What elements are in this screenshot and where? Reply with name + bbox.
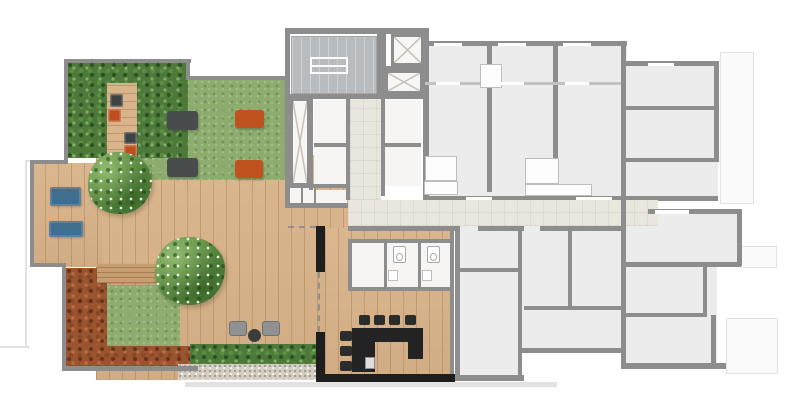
hedge-strip-bottom [190, 344, 320, 364]
bar-stool [359, 315, 370, 325]
unit-floor-south-b [522, 226, 624, 352]
terrace-shadow-line [185, 382, 557, 387]
elevator-shaft-1 [391, 34, 424, 66]
core-room-7 [316, 190, 347, 204]
wall-corridor-north [423, 196, 660, 200]
wall-core-a [309, 98, 313, 190]
opening-dashed-v [318, 272, 320, 332]
core-room-5 [289, 188, 301, 203]
window [434, 43, 462, 46]
bath-pod [525, 158, 559, 184]
wall-se-p2 [703, 267, 707, 317]
core-room-4 [385, 147, 421, 186]
window [466, 197, 492, 200]
wall-ua-bottom [452, 375, 524, 381]
gravel-strip [178, 364, 318, 380]
wall-corridor-south-1 [348, 226, 458, 231]
wall-gourmet-east [450, 231, 454, 381]
walkway-cushion-dark [124, 132, 137, 144]
wall-black-upper [316, 226, 325, 272]
wall-core-e [285, 203, 348, 208]
wall-hedge-left [64, 59, 68, 161]
core-room-6 [303, 188, 314, 203]
wall-lawn-top [188, 76, 287, 80]
sun-lounger-blue [49, 221, 83, 237]
wall-ub-partition [524, 306, 624, 310]
kitchen-counter [424, 181, 458, 195]
wall-se-east-top [737, 209, 742, 266]
walkway-cushion-orange [108, 109, 121, 122]
armchair [262, 321, 280, 336]
toilet [427, 246, 440, 263]
wall-ub-v [568, 230, 572, 310]
wall-wc-bottom [350, 287, 454, 291]
wall-se-p3 [711, 315, 716, 368]
window [563, 43, 591, 46]
side-table [248, 329, 261, 342]
unit-floor-northeast [627, 61, 718, 200]
wall-ua-partition [455, 268, 520, 272]
wall-core-g [314, 188, 316, 204]
wall-black-bottom [316, 374, 455, 382]
bar-counter-right [408, 342, 423, 359]
lounge-mat-orange [235, 160, 263, 178]
corridor-main [348, 200, 658, 226]
bath-pod [425, 156, 457, 181]
wall-rw-v3 [621, 41, 626, 211]
stair-landing [310, 57, 348, 74]
garden-bench [97, 264, 163, 283]
wall-wc-d1 [384, 243, 387, 287]
opening-dashed-h [288, 226, 316, 228]
walkway-cushion-dark [110, 94, 123, 107]
bar-stool [340, 331, 352, 341]
window [436, 82, 460, 85]
sink [388, 270, 398, 281]
floor-plan [0, 0, 795, 413]
bar-stool [340, 361, 352, 371]
wall-shrub-left [62, 265, 66, 368]
wall-core-c [385, 143, 421, 147]
bar-counter-top [352, 328, 423, 342]
core-room-1 [314, 100, 347, 143]
core-room-2 [314, 147, 347, 186]
window [498, 43, 526, 46]
wall-core-b [314, 143, 347, 147]
wall-arm-left [30, 160, 34, 267]
window [576, 197, 612, 200]
wardrobe [480, 64, 502, 88]
tree [88, 152, 152, 214]
bar-appliance [365, 357, 375, 369]
wall-se-p4 [626, 313, 706, 317]
bar-stool [340, 346, 352, 356]
corridor-core [350, 98, 381, 200]
window [648, 63, 674, 66]
sink [422, 270, 432, 281]
service-room [352, 243, 384, 287]
projection-line-bottom-left [0, 346, 30, 348]
sun-lounger-blue [50, 187, 81, 206]
elevator-shaft-2 [385, 70, 423, 94]
wall-corridor-south-3 [540, 226, 626, 231]
wall-core-top [285, 28, 429, 34]
projection-line-left [25, 162, 27, 346]
shrub-border-bottom [66, 346, 197, 366]
kitchen-counter [525, 184, 592, 196]
wall-ne-p2 [626, 158, 719, 162]
wall-hedge-top [64, 59, 191, 63]
balcony-ghost-top-right [720, 52, 754, 204]
wall-corridor-east [381, 98, 385, 196]
balcony-ghost-bottom-right [726, 318, 778, 374]
wall-ua-west [455, 226, 460, 380]
wall-se-bottom [621, 363, 726, 369]
wall-core-left [285, 28, 290, 205]
wall-se-west [621, 209, 626, 369]
bar-stool [405, 315, 416, 325]
window [500, 82, 524, 85]
wall-arm-bottom [30, 263, 66, 267]
core-room-3 [385, 100, 421, 143]
wall-ne-south [658, 196, 718, 201]
tree [155, 237, 225, 305]
wall-ne-right [714, 61, 719, 161]
service-shaft [290, 98, 310, 186]
wall-shaft-divider [385, 66, 424, 70]
window [655, 210, 689, 214]
bar-stool [374, 315, 385, 325]
wall-ne-p1 [626, 106, 716, 110]
wall-shrub-bottom [62, 366, 198, 371]
lounge-mat-dark [167, 111, 198, 130]
lounge-mat-dark [167, 158, 198, 177]
wall-core-d [285, 184, 347, 188]
wall-se-p1 [626, 262, 741, 267]
wall-core-f [301, 188, 303, 203]
toilet [393, 246, 406, 263]
wall-ua-east [518, 231, 522, 380]
balcony-ghost-mid-right [740, 246, 777, 268]
wall-wc-d2 [418, 243, 421, 287]
lounge-mat-orange [235, 110, 264, 128]
unit-floor-south-a [455, 226, 522, 378]
bar-stool [389, 315, 400, 325]
window [565, 82, 589, 85]
wall-wc-west [348, 239, 352, 291]
armchair [229, 321, 247, 336]
wall-arm-top [30, 160, 68, 164]
wall-ub-bottom [522, 348, 626, 353]
wall-wc-top [350, 239, 454, 243]
wall-stairs-shaft [377, 32, 386, 94]
